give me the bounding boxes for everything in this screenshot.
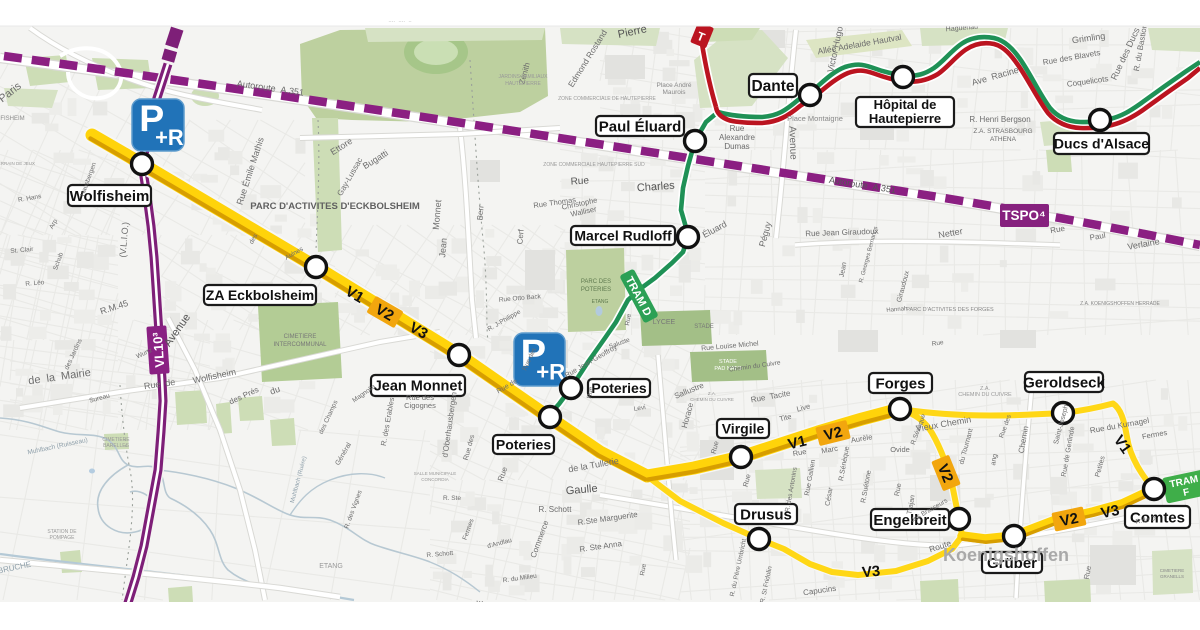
svg-text:ATHENA: ATHENA [990,136,1017,143]
svg-text:Marcel Rudloff: Marcel Rudloff [574,228,672,244]
svg-text:CONCORDIA: CONCORDIA [421,477,449,482]
svg-text:Rue: Rue [730,124,745,133]
svg-text:Place Montaigne: Place Montaigne [787,114,843,123]
svg-text:Maurois: Maurois [662,89,686,96]
svg-text:Koenigshoffen: Koenigshoffen [943,545,1069,565]
svg-text:CIMETIERE: CIMETIERE [1160,568,1185,573]
svg-text:Z.A.: Z.A. [708,391,716,396]
svg-text:Place André: Place André [656,82,691,89]
svg-text:Cerf: Cerf [515,228,525,245]
svg-text:V3: V3 [861,563,881,582]
svg-text:Ovide: Ovide [890,445,910,454]
svg-text:POMPAGE: POMPAGE [50,535,76,541]
svg-text:Poteries: Poteries [591,380,646,396]
svg-text:R. Ste: R. Ste [443,495,461,502]
svg-text:Hautepierre: Hautepierre [869,111,941,126]
svg-text:Geroldseck: Geroldseck [1023,374,1105,391]
svg-text:.... .... ..: .... .... .. [388,18,412,24]
svg-text:SALLE MUNICIPALE: SALLE MUNICIPALE [414,471,456,476]
svg-text:Forges: Forges [875,375,925,392]
svg-text:TSPO⁴: TSPO⁴ [1002,208,1045,223]
svg-text:+R: +R [536,360,565,385]
svg-text:ZONE COMMERCIALE DE HAUTEPIERR: ZONE COMMERCIALE DE HAUTEPIERRE [558,96,656,102]
svg-text:LYCEE: LYCEE [653,319,676,326]
svg-text:Paul Éluard: Paul Éluard [599,118,682,135]
svg-text:Dante: Dante [751,78,794,95]
svg-text:CHEMIN DU CUIVRE: CHEMIN DU CUIVRE [958,392,1012,398]
svg-text:POTERIES: POTERIES [581,287,611,293]
svg-text:...FISHEIM: ...FISHEIM [0,116,25,122]
svg-text:CIMETIERE: CIMETIERE [284,334,317,340]
svg-text:Dumas: Dumas [724,142,749,151]
svg-text:Jean: Jean [437,238,449,258]
svg-text:ZA Eckbolsheim: ZA Eckbolsheim [206,287,314,303]
svg-text:Poteries: Poteries [496,437,551,453]
svg-text:INTERCOMMUNAL: INTERCOMMUNAL [273,342,327,348]
svg-text:Avenue: Avenue [786,126,798,161]
svg-text:Virgile: Virgile [722,421,765,437]
svg-text:GRANELLS: GRANELLS [1160,574,1184,579]
svg-text:JARDINS FAMILIAUX: JARDINS FAMILIAUX [499,74,549,80]
svg-text:ETANG: ETANG [319,563,343,570]
svg-text:Berr: Berr [475,205,485,221]
svg-text:ETANG: ETANG [592,299,609,305]
svg-text:HAUTEPIERRE: HAUTEPIERRE [505,81,541,87]
svg-text:Ducs d'Alsace: Ducs d'Alsace [1054,136,1149,152]
svg-text:PARC D'ACTIVITES DES FORGES: PARC D'ACTIVITES DES FORGES [906,307,994,313]
svg-text:+R: +R [155,125,184,150]
svg-text:Rue: Rue [570,175,590,187]
svg-text:ZONE COMMERCIALE HAUTEPIERRE S: ZONE COMMERCIALE HAUTEPIERRE SUD [543,162,645,168]
svg-text:TERRAIN DE JEUX: TERRAIN DE JEUX [0,161,35,166]
svg-text:PARC D'ACTIVITES D'ECKBOLSHEIM: PARC D'ACTIVITES D'ECKBOLSHEIM [250,201,420,212]
svg-text:STADE: STADE [694,324,714,330]
svg-text:Cigognes: Cigognes [404,401,436,410]
svg-text:Alexandre: Alexandre [719,133,756,142]
svg-text:R. Henri Bergson: R. Henri Bergson [969,115,1030,124]
svg-text:Z.A. KOENIGSHOFFEN HERRADE: Z.A. KOENIGSHOFFEN HERRADE [1080,301,1160,307]
svg-text:STADE: STADE [719,359,737,365]
svg-text:BARELLES: BARELLES [103,443,130,449]
svg-text:CHEMIN DU CUIVRE: CHEMIN DU CUIVRE [690,397,734,402]
svg-text:Hôpital de: Hôpital de [874,97,937,112]
svg-text:R. Schott: R. Schott [539,505,573,514]
svg-text:Z.A. STRASBOURG: Z.A. STRASBOURG [973,128,1032,135]
svg-text:PARC DES: PARC DES [581,279,611,285]
